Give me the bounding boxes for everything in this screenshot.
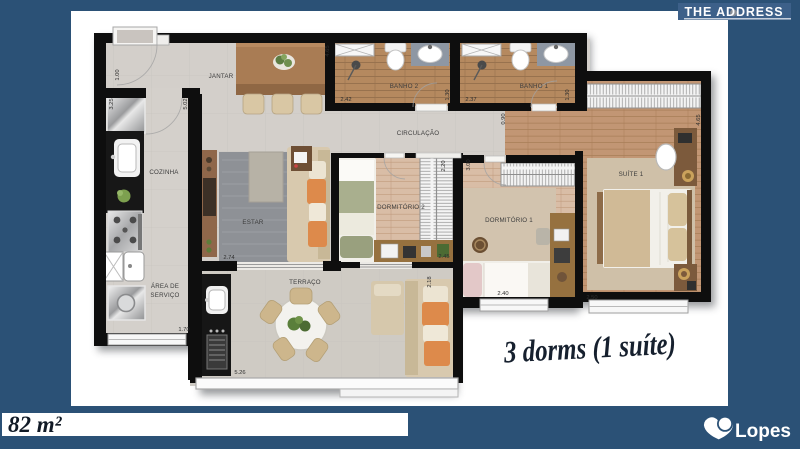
svg-text:0.90: 0.90 bbox=[501, 113, 507, 124]
svg-text:CIRCULAÇÃO: CIRCULAÇÃO bbox=[397, 130, 440, 137]
svg-text:2.40: 2.40 bbox=[497, 291, 508, 297]
svg-text:2.42: 2.42 bbox=[340, 97, 351, 103]
svg-text:TERRAÇO: TERRAÇO bbox=[289, 279, 321, 286]
svg-text:ÁREA DE: ÁREA DE bbox=[151, 283, 179, 290]
svg-text:COZINHA: COZINHA bbox=[149, 169, 179, 176]
svg-text:SUÍTE 1: SUÍTE 1 bbox=[619, 171, 644, 178]
svg-text:1.30: 1.30 bbox=[445, 89, 451, 100]
svg-text:SERVIÇO: SERVIÇO bbox=[150, 292, 179, 299]
svg-text:1.30: 1.30 bbox=[565, 89, 571, 100]
svg-text:82 m²: 82 m² bbox=[8, 412, 63, 437]
svg-text:3.25: 3.25 bbox=[109, 98, 115, 109]
svg-text:JANTAR: JANTAR bbox=[209, 73, 234, 80]
svg-text:DORMITÓRIO 2: DORMITÓRIO 2 bbox=[377, 204, 425, 211]
svg-text:5.02: 5.02 bbox=[183, 98, 189, 109]
svg-text:2.50: 2.50 bbox=[586, 295, 597, 301]
svg-text:1.00: 1.00 bbox=[115, 69, 121, 80]
svg-text:BANHO 2: BANHO 2 bbox=[390, 83, 419, 90]
svg-text:2.37: 2.37 bbox=[465, 97, 476, 103]
svg-text:2.45: 2.45 bbox=[438, 254, 449, 260]
svg-text:4.65: 4.65 bbox=[696, 114, 702, 125]
svg-text:BANHO 1: BANHO 1 bbox=[520, 83, 549, 90]
svg-text:THE ADDRESS: THE ADDRESS bbox=[684, 5, 783, 19]
svg-text:1.70: 1.70 bbox=[178, 327, 189, 333]
svg-text:DORMITÓRIO 1: DORMITÓRIO 1 bbox=[485, 217, 533, 224]
svg-text:3.00: 3.00 bbox=[466, 159, 472, 170]
svg-text:2.74: 2.74 bbox=[223, 255, 235, 261]
svg-text:ESTAR: ESTAR bbox=[242, 219, 264, 226]
svg-text:5.26: 5.26 bbox=[234, 370, 245, 376]
svg-text:2.20: 2.20 bbox=[441, 160, 447, 171]
svg-text:4.65: 4.65 bbox=[325, 45, 331, 56]
svg-text:Lopes: Lopes bbox=[735, 421, 791, 442]
svg-text:2.18: 2.18 bbox=[427, 276, 433, 287]
